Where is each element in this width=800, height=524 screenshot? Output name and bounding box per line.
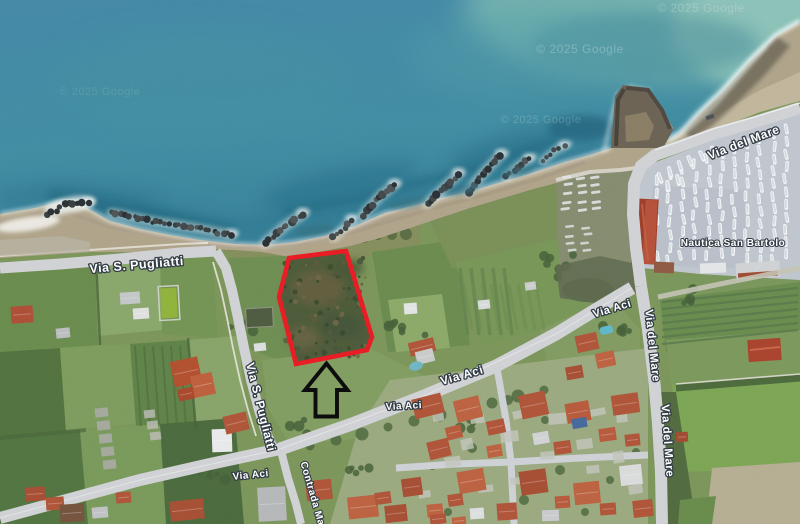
svg-text:© 2025 Google: © 2025 Google [657,1,744,15]
svg-text:Nautica San Bartolo: Nautica San Bartolo [681,238,786,249]
svg-text:© 2025 Google: © 2025 Google [536,42,623,56]
svg-text:Via Aci: Via Aci [385,400,422,413]
svg-text:© 2025 Google: © 2025 Google [60,86,141,98]
svg-text:© 2025 Google: © 2025 Google [501,114,582,126]
